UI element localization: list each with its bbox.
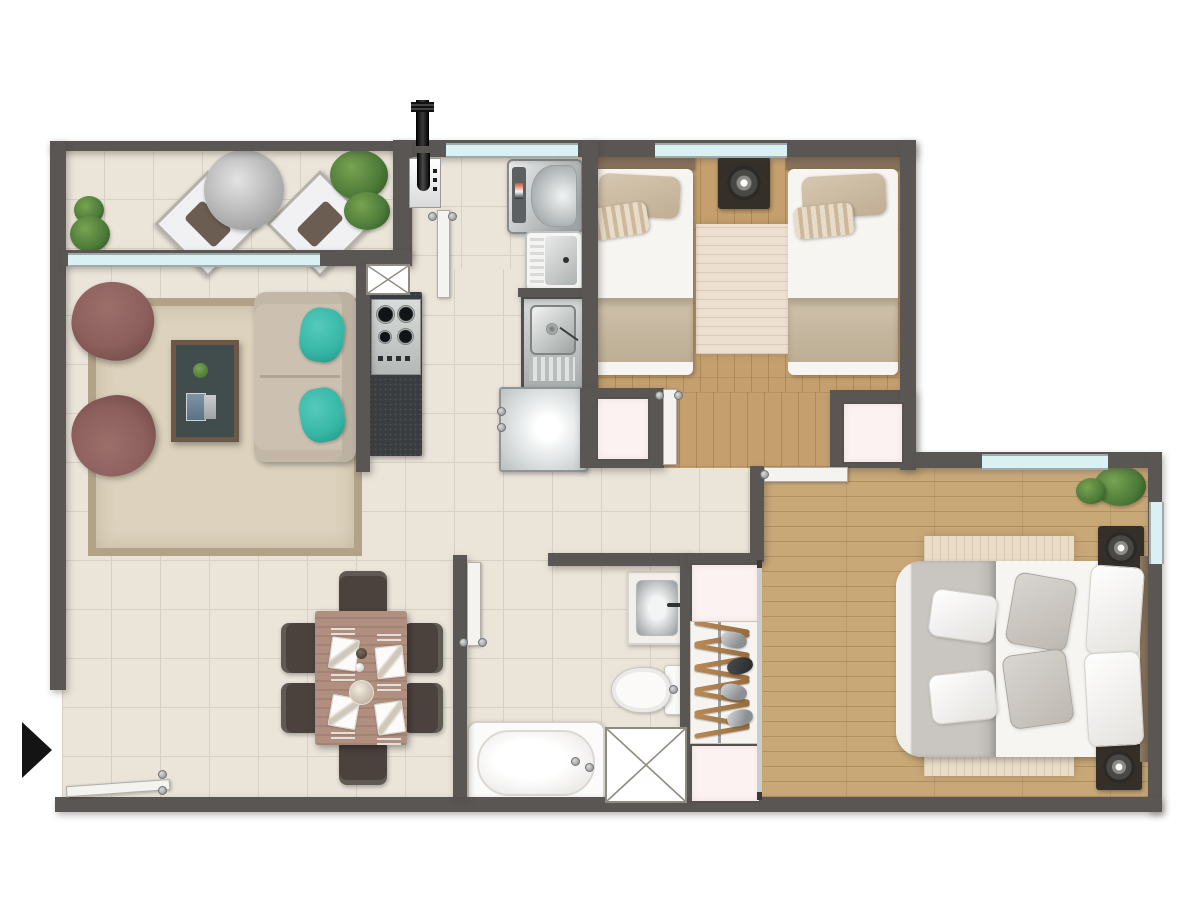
refrigerator [499,387,588,472]
place-setting-2 [374,645,405,680]
gas-cooktop [371,299,421,375]
master-lamp-top [1105,532,1137,564]
master-top-window [982,454,1108,470]
sofa-cushion-top [296,305,347,365]
wardrobe-lower-cabinet [690,744,761,803]
bedroom2-closet-right [842,402,904,464]
bedroom2-closet-left [596,397,650,461]
fridge-handle-a [497,407,506,416]
master-nightstand-bottom [1096,744,1142,790]
master-door-hinge [760,470,769,479]
dining-chair-right-2 [403,683,443,733]
sofa [254,292,356,462]
balcony-kitchen-door [437,210,450,298]
toilet-bowl [611,667,671,713]
coffee-table [171,340,239,442]
bedroom2-door [663,389,677,465]
bathroom-vanity [627,571,687,645]
cutlery-5 [331,730,355,739]
water-heater [409,158,441,208]
burner-2 [397,305,415,323]
cooktop-knobs [378,356,410,361]
bed-pillow-striped [792,202,855,240]
bedroom2-nightstand [718,157,770,209]
bedroom2-window [655,143,787,158]
bathroom-door-hinge-b [478,638,487,647]
master-plant-2 [1076,478,1106,504]
master-pillow-2 [1084,651,1145,748]
clothes-hanger [694,725,750,740]
master-lamp-bottom [1103,751,1135,783]
sink-drain [546,323,558,335]
cutlery-1 [331,626,355,635]
balcony-plant-right-2 [344,192,390,230]
wardrobe-upper-cabinet [690,563,760,623]
washing-machine [507,159,583,234]
wall-balcony-parapet [50,141,399,151]
master-side-window [1149,502,1164,564]
master-bedroom-door [764,467,848,482]
bed-headboard [786,155,900,170]
fridge-handle-b [497,423,506,432]
burner-1 [376,305,395,324]
laundry-tub [525,231,583,292]
wall-master-west-stub [750,466,764,562]
master-pillow-3 [1004,571,1078,653]
bathroom-shaft [605,727,687,803]
bathtub [467,721,605,805]
burner-4 [397,328,414,345]
sofa-cushion-bottom [296,385,349,446]
dining-centerpiece-bowl [349,680,374,705]
place-setting-4 [374,700,406,736]
water-heater-body [417,153,430,191]
coffee-table-magazines [186,393,206,421]
water-heater-flue-cap [411,102,434,112]
laundry-window [446,143,578,158]
balcony-round-table [204,150,284,230]
master-pillow-6 [928,669,999,726]
sink-drainboard [529,357,575,381]
cutlery-6 [377,736,401,745]
wardrobe-hanging-zone [690,621,759,744]
laundry-tub-ridges [530,237,544,283]
lounge-cushion [296,200,344,248]
floor-plan [0,0,1200,900]
single-bed-right [786,155,900,377]
bathroom-door-hinge-a [459,638,468,647]
entry-door-hinge-b [158,786,167,795]
wall-bedroom2-west [582,140,598,392]
coffee-table-book [204,395,216,419]
master-pillow-1 [1085,564,1145,658]
washer-lid [531,165,577,227]
balcony-kitchen-door-hinge-b [448,212,457,221]
bedroom2-rug [696,224,788,354]
bed-blanket [585,298,693,362]
toilet-flush-button [669,685,678,694]
bedroom2-lamp [727,166,761,200]
bathtub-drain [571,757,580,766]
burner-3 [378,330,392,344]
dining-salt-shaker [355,663,364,672]
cutlery-3 [331,672,355,681]
master-nightstand-top [1098,526,1144,570]
wall-bathroom-west [453,555,467,797]
wall-bathroom-top [548,553,688,566]
laundry-tub-basin [545,236,577,285]
dining-chair-bottom [339,739,387,785]
hanging-clothes [725,707,754,729]
entry-door-hinge-a [158,770,167,779]
laundry-tub-drain [563,257,569,263]
bed-blanket [788,298,898,362]
cutlery-2 [377,632,401,641]
wall-laundry-divider [518,288,584,297]
balcony-plant-left-2 [70,216,110,252]
wardrobe-sliding-door [757,560,762,800]
master-pillow-4 [1001,648,1075,730]
vanity-basin [636,580,678,636]
wall-left-outer [50,141,66,690]
dining-pepper-mill [356,648,367,659]
single-bed-left [583,155,695,377]
kitchen-shaft [366,264,410,295]
sofa-seat-split [260,375,340,378]
cutlery-4 [377,682,401,691]
bedroom2-door-hinge-b [674,391,683,400]
toilet [611,664,685,714]
entrance-arrow-icon [22,722,52,778]
bedroom2-door-hinge-a [655,391,664,400]
water-heater-knobs [433,165,437,191]
coffee-table-plant [193,363,208,378]
balcony-living-window [68,253,320,267]
master-pillow-5 [927,588,999,645]
bathroom-door [467,562,481,646]
bathtub-faucet [585,763,594,772]
kitchen-sink [521,296,587,390]
wall-kitchen-west [356,266,370,472]
dining-chair-right-1 [403,623,443,673]
washer-display [515,183,523,199]
hallway-floor [662,392,834,468]
balcony-kitchen-door-hinge-a [428,212,437,221]
